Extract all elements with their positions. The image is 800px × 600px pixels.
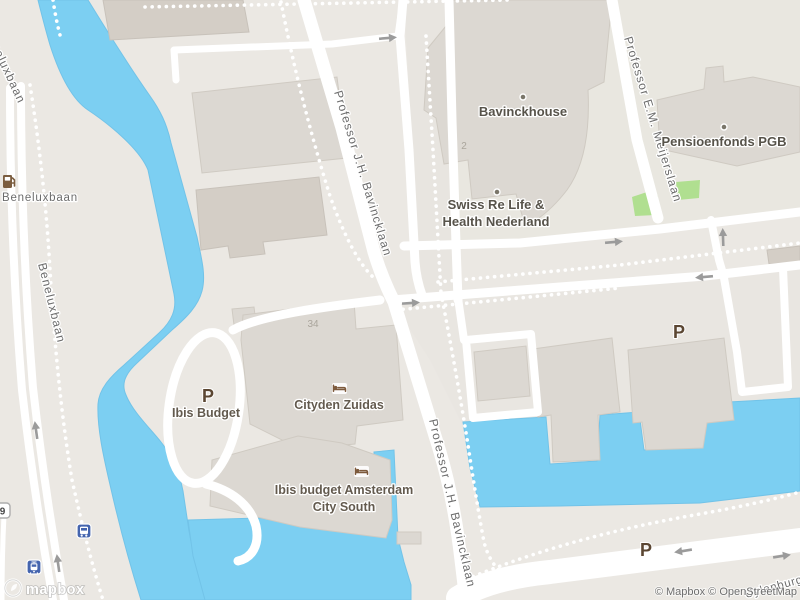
poi-dot	[494, 189, 500, 195]
poi-label-ibis-south-line2: City South	[313, 500, 376, 514]
tram-stop-icon	[27, 560, 41, 574]
poi-label-cityden: Cityden Zuidas	[294, 398, 384, 412]
poi-dot	[721, 124, 727, 130]
house-number-34: 34	[307, 319, 319, 330]
parking-icon: P	[202, 386, 214, 406]
poi-label-swissre-line2: Health Nederland	[443, 214, 550, 229]
bed-icon	[332, 383, 347, 394]
poi-label-ibis-south-line1: Ibis budget Amsterdam	[275, 483, 413, 497]
poi-label-ibis-budget: Ibis Budget	[172, 406, 241, 420]
bed-icon	[354, 466, 369, 477]
parking-icon: P	[640, 540, 652, 560]
map-container: Beneluxbaan Beneluxbaan Beneluxbaan Prof…	[0, 0, 800, 600]
street-label-beneluxbaan-horizontal: Beneluxbaan	[2, 192, 78, 204]
mapbox-logo-text: mapbox	[26, 582, 85, 598]
poi-label-pensioenfonds: Pensioenfonds PGB	[662, 134, 787, 149]
parking-icon: P	[673, 322, 685, 342]
poi-label-bavinckhouse: Bavinckhouse	[479, 104, 567, 119]
bus-stop-icon	[77, 524, 91, 538]
map-canvas[interactable]: Beneluxbaan Beneluxbaan Beneluxbaan Prof…	[0, 0, 800, 600]
poi-label-swissre-line1: Swiss Re Life &	[448, 197, 545, 212]
house-number-2: 2	[461, 141, 467, 152]
route-shield: 9	[0, 503, 10, 518]
poi-dot	[520, 94, 526, 100]
route-shield-number: 9	[0, 507, 6, 518]
attribution-link[interactable]: © Mapbox © OpenStreetMap	[655, 586, 797, 598]
